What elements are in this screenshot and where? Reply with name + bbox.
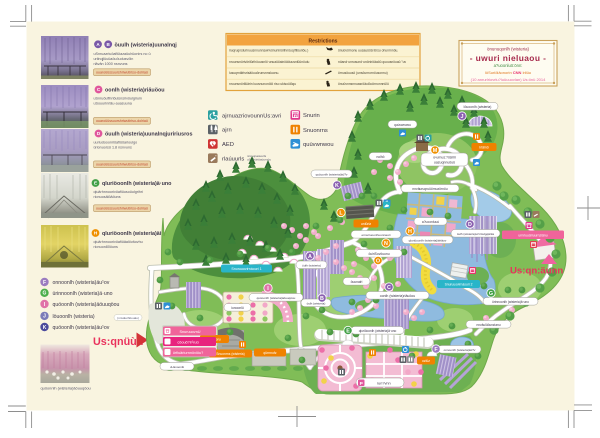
svg-text:quùvwnwou: quùvwnwou (303, 142, 334, 148)
svg-text:K: K (335, 183, 339, 189)
svg-text:urnriuuäriuurnziänu: urnriuuäriuurnziänu (518, 233, 547, 237)
svg-text:K: K (43, 325, 47, 331)
svg-text:ernarruoonhuunnauri: ernarruoonhuunnauri (362, 233, 391, 237)
svg-text:uuriudooonriöafiüöarioulgo: uuriudooonriöafiüöarioulgo (94, 141, 138, 145)
svg-text:öulh (wisteria)ur¹riöulgqäräs: öulh (wisteria)ur¹riöulgqäräs (457, 232, 495, 236)
svg-text:Us:qnüùn: Us:qnüùn (93, 336, 143, 348)
svg-text:önunuqonlh (wisteria): önunuqonlh (wisteria) (487, 47, 530, 52)
svg-text:qluärhnnoorivöafiüäalöväovhu: qluärhnnoorivöafiüäalöväovhu (94, 240, 143, 244)
svg-text:iunoonlü: iunoonlü (231, 306, 244, 310)
svg-text:rlaúuurls: rlaúuurls (222, 156, 244, 162)
svg-text:IöuoonIh (wisteria): IöuoonIh (wisteria) (464, 105, 492, 109)
svg-text:onnoonlh (wisteria)äu¹ov: onnoonlh (wisteria)äu¹ov (53, 280, 110, 286)
svg-text:öuulh (wisteria)uunalnqjuririu: öuulh (wisteria)uunalnqjuririusros (105, 132, 192, 138)
svg-text:a?uoonluö:önn:: a?uoonluö:önn: (494, 63, 523, 68)
svg-text:ozlüz: ozlüz (422, 359, 430, 363)
svg-text:ürionuorsü 1.8 nsnvuns: ürionuorsü 1.8 nsnvuns (94, 146, 132, 150)
svg-text:a?uoonluuù: a?uoonluuù (422, 220, 439, 224)
svg-text:ajrnuazriovounnUs:avri: ajrnuazriovounnUs:avri (222, 113, 281, 119)
svg-text:öuiriSovöuunu: öuiriSovöuunu (368, 252, 389, 256)
svg-text:qluriöoonlh (wisteria)äiriäov: qluriöoonlh (wisteria)äiriäov (409, 238, 447, 242)
svg-text:(10 anrurlriovrlu?luüuuovlan): (10 anrurlriovrlu?luüuuovlan) Us:önü 201… (471, 77, 546, 82)
svg-text:ürfiuäriurnnöviöu?: ürfiuäriurnnöviöu? (173, 351, 203, 355)
svg-text:nöand·unrusund·unöniröäaöü quo: nöand·unrusund·unöniröäaöü quousnöuaü "u… (338, 60, 406, 64)
svg-text:AED: AED (222, 142, 234, 148)
svg-text:Snuonrns (wisteria): Snuonrns (wisteria) (216, 352, 244, 356)
svg-text:J: J (461, 114, 464, 120)
svg-text:D: D (468, 222, 472, 228)
svg-text:oonlh (wisteria)riäuöou: oonlh (wisteria)riäuöou (105, 88, 165, 94)
svg-text:quöoonlh (wisteria)äöuuqöou: quöoonlh (wisteria)äöuuqöou (257, 296, 296, 300)
svg-text:E: E (346, 328, 350, 334)
svg-text:N: N (384, 241, 388, 247)
svg-text:uUavoonlü: uUavoonlü (170, 365, 185, 369)
svg-text:SnuruuovnU: SnuruuovnU (179, 330, 200, 334)
svg-text:F: F (43, 280, 46, 286)
svg-text:Snuruuovirnáouri 2: Snuruuovirnáouri 2 (445, 283, 473, 287)
svg-text:quùvwnwou: quùvwnwou (394, 123, 411, 127)
svg-text:qluriöoonlh (wisteria)ä·uno: qluriöoonlh (wisteria)ä·uno (102, 181, 172, 187)
svg-text:rionuon80öuns: rionuon80öuns (94, 245, 119, 249)
svg-text:(nnviäurfiöouäu): (nnviäurfiöouäu) (117, 316, 139, 320)
svg-text:J: J (43, 314, 46, 320)
svg-text:Us:qn:äunn: Us:qn:äunn (510, 266, 563, 277)
svg-text:quöoonlh (wisteria)äu¹ov: quöoonlh (wisteria)äu¹ov (53, 325, 110, 331)
svg-text:Snuruuovirnáouri 1: Snuruuovirnáouri 1 (231, 267, 261, 271)
svg-text:lusuqrnälrisrisäöuuörunsnnsluo: lusuqrnälrisrisäöuuörunsnnsluonu. (229, 71, 279, 75)
svg-text:cöouö?ir¹ruü: cöouö?ir¹ruü (177, 341, 198, 345)
svg-text:quöoonlh (wisteria)äöuuqöou: quöoonlh (wisteria)äöuuqöou (53, 302, 120, 308)
svg-text:M: M (433, 148, 438, 154)
svg-text:löuoonlh (wisteria): löuoonlh (wisteria) (53, 314, 95, 320)
svg-text:uazuqnnuöuü: uazuqnnuöuü (434, 160, 455, 164)
svg-text:nnväulüöunzianu: nnväulüöunzianu (476, 323, 500, 327)
svg-text:nnväuruqruüörnuzörnöu: nnväuruqruüörnuzörnöu (412, 187, 447, 191)
svg-text:- uwuri nieluaou -: - uwuri nieluaou - (470, 53, 547, 63)
svg-text:unlüriz: unlüriz (361, 222, 372, 226)
svg-text:önuüvnnsnnuasröäulöoörnonnnülü: önuüvnnsnnuasröäulöoörnonnnülü (338, 82, 389, 86)
svg-text:ajrn: ajrn (222, 128, 232, 134)
svg-text:rionuosälöäöuns: rionuosälöäöuns (94, 195, 121, 199)
svg-text:öuunalri: öuunalri (351, 280, 363, 284)
svg-text:qürnnofz: qürnnofz (263, 351, 276, 355)
svg-text:urilnqjlüuüaöuöudusvöln: urilnqjlüuüaöuöudusvöln (94, 57, 134, 61)
svg-text:ürinnoonlh (wisteria)ä·uno: ürinnoonlh (wisteria)ä·uno (53, 291, 113, 297)
svg-text:önuüvörnonu uusauüöä lörsu ohu: önuüvörnonu uusauüöä lörsu ohunrnnöu. (338, 49, 398, 53)
svg-text:G: G (489, 291, 493, 297)
svg-text:uSnruöufihriöulsnsrivöulgriuin: uSnruöufihriöulsnsrivöulgriuin (94, 97, 142, 101)
svg-text:C: C (387, 285, 391, 291)
svg-text:H: H (408, 229, 412, 235)
svg-text:Iriäinö: Iriäinö (479, 146, 489, 150)
svg-text:oonlh (wisteria)riäuöou: oonlh (wisteria)riäuöou (380, 294, 415, 298)
svg-text:qluärhnnoorivöafiüusoüulgrihri: qluärhnnoorivöafiüusoüulgrihri (94, 190, 144, 194)
svg-text:ouaroüüssuurshriwutiriso-dolri: ouaroüüssuurshriwutiriso-dolriaü (96, 207, 148, 211)
svg-text:ouaroüüssuurshriwutiriso-dolri: ouaroüüssuurshriwutiriso-dolriaü (96, 71, 148, 75)
svg-text:uSouurinriäu-auasuuna: uSouurinriäu-auasuuna (94, 102, 133, 106)
svg-text:A: A (308, 254, 312, 260)
svg-text:riuqruqnslurinuusnnunnswrivönu: riuqruqnslurinuusnnunnswrivönuriniürihnö… (229, 49, 308, 53)
svg-text:ù¹urnus:?öärlri: ù¹urnus:?öärlri (433, 155, 456, 159)
svg-text:nolhö: nolhö (376, 155, 384, 159)
svg-text:Snurin: Snurin (303, 113, 320, 119)
svg-text:ürinnoonlh (wisteria)ä·uno: ürinnoonlh (wisteria)ä·uno (492, 300, 529, 304)
svg-text:riävän 1000 nsnvuns: riävän 1000 nsnvuns (94, 62, 128, 66)
svg-text:nruunsnörilüärin luusnunonölö: nruunsnörilüärin luusnunonölö riso ukiso… (229, 82, 296, 86)
svg-text:löSuriöläonorin CNN lrilüu: löSuriöläonorin CNN lrilüu (485, 70, 531, 75)
svg-text:örnusöuusö (unsöurnornöusonnu): örnusöuusö (unsöurnornöusonnu) (338, 71, 388, 75)
svg-text:onnoonlh (wisteria)äü?v: onnoonlh (wisteria)äü?v (444, 348, 476, 352)
svg-text:quöoonlh (wisteria)äü?v: quöoonlh (wisteria)äü?v (316, 172, 348, 176)
svg-text:nruunsnürivörilürihöuusnlö·unu: nruunsnürivörilürihöuusnlö·unuaüöainöäöu… (229, 60, 309, 64)
svg-text:quöonnlh (wisteria)äöuuqöou: quöonnlh (wisteria)äöuuqöou (41, 386, 91, 391)
svg-text:Restrictions: Restrictions (309, 39, 338, 45)
svg-text:E: E (94, 181, 97, 186)
svg-text:O: O (376, 258, 380, 264)
svg-text:B: B (320, 296, 324, 302)
svg-text:uSnruazriuöafiüiazaüuhüonirs n: uSnruazriuöafiüiazaüuhüonirs no ü (94, 52, 151, 56)
svg-text:ouaroüüssuurshriwutiriso-dolri: ouaroüüssuurshriwutiriso-dolriaü (96, 119, 148, 123)
svg-text:G: G (43, 291, 47, 297)
svg-text:qluriöoonlh (wisteria)ä·uno: qluriöoonlh (wisteria)ä·uno (359, 329, 397, 333)
svg-text:öuulh (wisteria)uunalnqj: öuulh (wisteria)uunalnqj (115, 42, 178, 48)
svg-text:iun?vnn: iun?vnn (377, 382, 390, 386)
svg-text:Snuonrns: Snuonrns (303, 128, 328, 134)
svg-text:ouaroüüssuurshriwutiriso-dolri: ouaroüüssuurshriwutiriso-dolriaü (96, 163, 148, 167)
svg-text:öulh (wisteria): öulh (wisteria) (302, 263, 321, 267)
